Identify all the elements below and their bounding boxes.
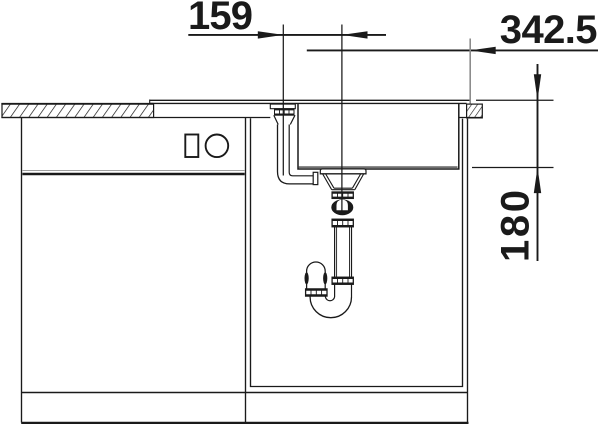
svg-text:342.5: 342.5 xyxy=(500,8,597,52)
svg-text:159: 159 xyxy=(188,0,252,38)
svg-text:180: 180 xyxy=(494,190,538,262)
